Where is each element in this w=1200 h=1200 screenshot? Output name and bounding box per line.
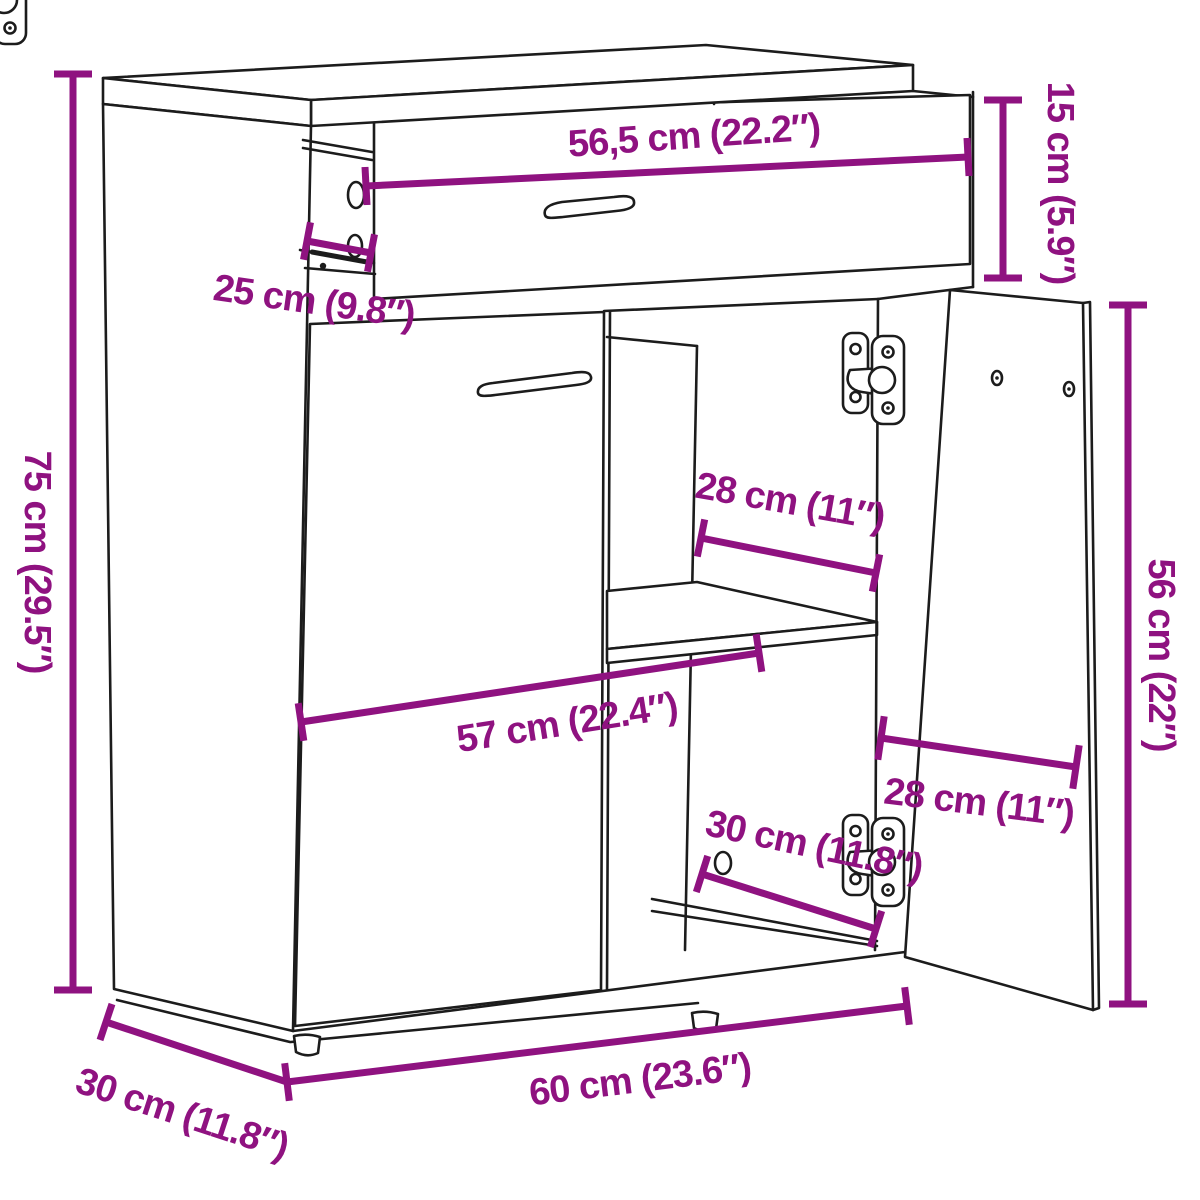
dim-label-overall-height: 75 cm (29.5″) (18, 451, 56, 674)
dim-line-overall-height (54, 74, 92, 990)
dim-line-drawer-depth (304, 222, 375, 271)
dim-line-overall-depth (100, 1004, 287, 1082)
dim-label-door-height: 56 cm (22″) (1142, 558, 1180, 751)
dim-line-drawer-height (984, 100, 1022, 278)
dim-label-drawer-height: 15 cm (5.9″) (1041, 82, 1079, 285)
dimension-diagram: 56,5 cm (22.2″) 15 cm (5.9″) 25 cm (9.8″… (0, 0, 1200, 1200)
dimension-lines (0, 0, 1200, 1200)
